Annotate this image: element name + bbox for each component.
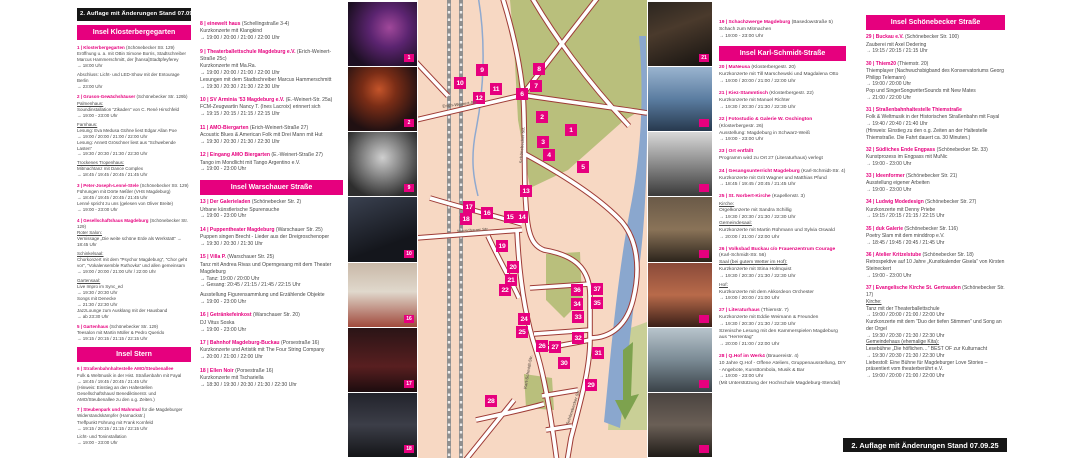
venue-line: → 19:30 / 20:30 / 21:30 / 22:30 Uhr bbox=[200, 84, 343, 91]
photo-right-3 bbox=[648, 132, 712, 196]
venue-line: Kurzkonzerte mit Martin Rühmann und Sylv… bbox=[719, 228, 846, 235]
section-header: Insel Schönebecker Straße bbox=[866, 15, 1005, 30]
map-marker-35: 35 bbox=[591, 297, 603, 309]
venue-title: 28 | Q.Hof im Werk4 (Brauereistr. 4) bbox=[719, 354, 846, 361]
venue-entry-10: 10 | SV Arminia ’53 Magdeburg e.V. (E.-W… bbox=[200, 97, 343, 118]
flyer: 2. Auflage mit Änderungen Stand 07.09.25… bbox=[0, 0, 1079, 458]
venue-line: → 19:00 - 23:00 Uhr bbox=[200, 166, 343, 173]
map-marker-5: 5 bbox=[577, 161, 589, 173]
map-marker-6: 6 bbox=[516, 88, 528, 100]
photo-badge bbox=[699, 315, 709, 323]
venue-address: (Schönebecker Str. 116) bbox=[903, 226, 958, 232]
venue-line: → 19:15 / 20:15 / 21:15 / 22:15 Uhr bbox=[200, 111, 343, 118]
venue-line: → 18:45 / 19:45 / 20:45 / 21:45 Uhr bbox=[719, 182, 846, 189]
photo-right-2 bbox=[648, 67, 712, 131]
photo-badge: 1 bbox=[404, 54, 414, 62]
map-marker-25: 25 bbox=[516, 326, 528, 338]
map-marker-7: 7 bbox=[530, 80, 542, 92]
venue-line: Ausstellung Figurensammlung und Erzählen… bbox=[200, 292, 343, 299]
venue-title: 13 | Der Galerieladen (Schönebecker Str.… bbox=[200, 199, 343, 206]
venue-line: Kurzkonzerte und Artistik mit The Four S… bbox=[200, 347, 343, 354]
venue-line: → 19:00 / 20:00 Uhr bbox=[866, 81, 1005, 88]
venue-title: 26 | Volksbad Buckau c/o Frauenzentrum C… bbox=[719, 247, 846, 260]
photo-right-5 bbox=[648, 263, 712, 327]
program-column-4: Insel Schönebecker Straße29 | Buckau e.V… bbox=[866, 12, 1005, 385]
venue-line: Retrospektive auf 10 Jahre „Kunstkalende… bbox=[866, 259, 1005, 273]
venue-address: (Basedowstraße 5) bbox=[790, 20, 833, 25]
venue-entry-11: 11 | AMO-Biergarten (Erich-Weinert-Straß… bbox=[200, 125, 343, 146]
photo-badge bbox=[699, 119, 709, 127]
venue-line: Eröffnung u. a. mit OBin Simone Borris, … bbox=[77, 51, 191, 63]
venue-line: → 23:00 Uhr bbox=[77, 84, 191, 90]
venue-name: 33 | Ideenformer bbox=[866, 173, 905, 179]
venue-address: (Schönebecker Str. 129) bbox=[108, 324, 158, 329]
venue-entry-36: 36 | Atelier Kritzelstube (Schönebecker … bbox=[866, 252, 1005, 280]
venue-line: Folk & Weltmusik in der Historischen Str… bbox=[866, 114, 1005, 121]
venue-line: → 19:00 - 23:00 Uhr bbox=[77, 207, 191, 213]
venue-address: (E.-Weinert-Straße 27) bbox=[270, 152, 323, 158]
venue-title: 19 | Schachzwerge Magdeburg (Basedowstra… bbox=[719, 20, 846, 27]
map-marker-37: 37 bbox=[591, 283, 603, 295]
venue-entry-3: 3 | Peter-Joseph-Lenné-Stele (Schönebeck… bbox=[77, 183, 191, 213]
photo-left-3: 9 bbox=[348, 132, 417, 196]
venue-line: Kurzkonzerte mit Till Marschewski und Ma… bbox=[719, 72, 846, 79]
venue-name: 32 | Südliches Ende Engpass bbox=[866, 147, 935, 153]
venue-title: 31 | Straßenbahnhaltestelle Thiemstraße bbox=[866, 107, 1005, 114]
venue-line: → 19:15 / 20:15 / 21:15 Uhr bbox=[866, 48, 1005, 55]
venue-line: Lesungen mit dem Stadtschreiber Marcus H… bbox=[200, 77, 343, 84]
venue-entry-14: 14 | Puppentheater Magdeburg (Warschauer… bbox=[200, 227, 343, 248]
venue-entry-1: 1 | Klosterbergegarten (Schönebecker Str… bbox=[77, 45, 191, 90]
venue-entry-21: 21 | Kiez-Stammtisch (Klosterbergestr. 2… bbox=[719, 91, 846, 111]
venue-address: (Schönebecker Str. 27) bbox=[924, 199, 977, 205]
venue-line: → 19:40 / 20:40 / 21:40 Uhr bbox=[866, 121, 1005, 128]
venue-line: Folk & Weltmusik in der Hist. Straßenbah… bbox=[77, 373, 191, 379]
venue-line: → 19:30 / 20:30 / 21:30 / 22:30 Uhr bbox=[719, 105, 846, 112]
venue-line: → 19:00 - 23:00 Uhr bbox=[200, 327, 343, 334]
map-marker-2: 2 bbox=[536, 111, 548, 123]
map-overlay: 1234567891011121314151617181920212224252… bbox=[418, 0, 647, 458]
map-marker-3: 3 bbox=[537, 136, 549, 148]
venue-name: 13 | Der Galerieladen bbox=[200, 199, 250, 205]
venue-title: 36 | Atelier Kritzelstube (Schönebecker … bbox=[866, 252, 1005, 259]
venue-name: 4 | Gesellschaftshaus Magdeburg bbox=[77, 218, 149, 223]
street-label-3: Warschauer Str. bbox=[457, 226, 489, 233]
venue-name: 14 | Puppentheater Magdeburg bbox=[200, 227, 274, 233]
venue-entry-31: 31 | Straßenbahnhaltestelle ThiemstraßeF… bbox=[866, 107, 1005, 141]
venue-entry-20: 20 | MaNeusa (Klosterbergestr. 20)Kurzko… bbox=[719, 65, 846, 85]
venue-line: Acoustic Blues & American Folk mit Drei … bbox=[200, 132, 343, 139]
venue-line: Urbane künstlerische Spurensuche bbox=[200, 207, 343, 214]
venue-line: (Mit Unterstützung der Hochschule Magdeb… bbox=[719, 381, 846, 388]
venue-name: 9 | Theaterballettschule Magdeburg e.V. bbox=[200, 49, 296, 55]
map-marker-26: 26 bbox=[536, 340, 548, 352]
map: 1234567891011121314151617181920212224252… bbox=[418, 0, 647, 458]
venue-line: → 19:00 - 23:00 Uhr bbox=[719, 374, 846, 381]
venue-line: → 19:30 / 20:30 / 21:30 / 22:30 Uhr bbox=[200, 139, 343, 146]
venue-line: Kurzkonzerte mit Denny Priebe bbox=[866, 207, 1005, 214]
venue-title: 24 | Gesangsunterricht Magdeburg (Karl-S… bbox=[719, 169, 846, 176]
venue-entry-35: 35 | duk Galerie (Schönebecker Str. 116)… bbox=[866, 226, 1005, 247]
venue-entry-13: 13 | Der Galerieladen (Schönebecker Str.… bbox=[200, 199, 343, 220]
venue-entry-17: 17 | Bahnhof Magdeburg-Buckau (Porsestra… bbox=[200, 340, 343, 361]
venue-address: (Thiemstr. 7) bbox=[760, 308, 789, 313]
map-marker-28: 28 bbox=[485, 395, 497, 407]
venue-name: 2 | Gruson-Gewächshäuser bbox=[77, 94, 135, 99]
venue-address: (Klosterbergestr. 20) bbox=[750, 65, 796, 70]
venue-line: → 19:00 / 20:00 / 21:00 / 22:00 Uhr bbox=[200, 70, 343, 77]
street-label-1: Erich-Weinert-Str. bbox=[442, 99, 478, 108]
venue-line: FCM-Zeugwartin Nancy T. (Ines Lacroix) e… bbox=[200, 104, 343, 111]
venue-entry-23: 23 | Ort entfälltProgramm wird zu Ort 27… bbox=[719, 149, 846, 163]
venue-name: 25 | St. Norbert-Kirche bbox=[719, 194, 771, 199]
venue-entry-6: 6 | Straßenbahnhaltestelle AMO/Steubenal… bbox=[77, 366, 191, 402]
photo-badge: 17 bbox=[404, 380, 414, 388]
venue-address: (E.-Weinert-Str. 25a) bbox=[284, 97, 332, 103]
photo-badge bbox=[699, 184, 709, 192]
map-marker-29: 29 bbox=[585, 379, 597, 391]
venue-address: (Klosterbergestr. 26) bbox=[719, 124, 763, 129]
photo-left-7: 18 bbox=[348, 393, 417, 457]
venue-address: (Karl-Schmidt-Str. 56) bbox=[719, 253, 766, 258]
map-marker-31: 31 bbox=[592, 347, 604, 359]
venue-address: (Schönebecker Str. 2) bbox=[250, 199, 301, 205]
venue-line: Kurzkonzerte mit Tschariella bbox=[200, 375, 343, 382]
venue-room-label: Gemeindehaus (ehemalige Kita): bbox=[866, 339, 1005, 346]
map-marker-9: 9 bbox=[476, 64, 488, 76]
venue-line: → 19:15 / 20:15 / 21:15 / 22:15 Uhr bbox=[866, 213, 1005, 220]
photo-left-1: 1 bbox=[348, 2, 417, 66]
venue-line: Schach zum Mitmachen bbox=[719, 27, 846, 34]
venue-line: → 19:00 - 23:00 Uhr bbox=[200, 213, 343, 220]
program-column-3: 19 | Schachzwerge Magdeburg (Basedowstra… bbox=[719, 20, 846, 393]
venue-address: (Thiemstr. 20) bbox=[896, 61, 928, 67]
venue-entry-24: 24 | Gesangsunterricht Magdeburg (Karl-S… bbox=[719, 169, 846, 189]
venue-line: Puppen singen Brecht - Lieder aus der Dr… bbox=[200, 234, 343, 241]
venue-name: 1 | Klosterbergegarten bbox=[77, 45, 125, 50]
venue-line: Lesebühne „Die höflichen…” BEST OF zur K… bbox=[866, 346, 1005, 353]
venue-line: Kurzkonzerte mit Ma.Ra. bbox=[200, 63, 343, 70]
venue-title: 33 | Ideenformer (Schönebecker Str. 21) bbox=[866, 173, 1005, 180]
venue-address: (Schönebecker Str. 100) bbox=[904, 34, 959, 40]
venue-line: → 18:45 / 19:45 / 20:45 / 21:45 Uhr bbox=[77, 172, 191, 178]
venue-title: 18 | Ellen Noir (Porsestraße 16) bbox=[200, 368, 343, 375]
venue-line: Soundinstallation “Zikaden” von C. René … bbox=[77, 107, 191, 113]
venue-line: → 19:30 / 20:30 / 21:30 / 22:30 Uhr bbox=[866, 333, 1005, 340]
venue-line: → 21:00 / 22:00 Uhr bbox=[866, 95, 1005, 102]
venue-entry-7: 7 | Steubenpark und Mahnmal für die Magd… bbox=[77, 407, 191, 446]
venue-name: 16 | Getränkefeinkost bbox=[200, 312, 252, 318]
map-marker-18: 18 bbox=[460, 213, 472, 225]
venue-address: (Karl-Schmidt-Str. 4) bbox=[800, 169, 846, 174]
venue-entry-33: 33 | Ideenformer (Schönebecker Str. 21)A… bbox=[866, 173, 1005, 194]
map-marker-32: 32 bbox=[572, 332, 584, 344]
street-label-2: Schönebecker Str. bbox=[518, 127, 526, 164]
venue-address: (Schellingstraße 3-4) bbox=[241, 21, 290, 27]
venue-name: 5 | Gartenhaus bbox=[77, 324, 108, 329]
venue-line: → 20:00 / 21:00 / 22:00 Uhr bbox=[719, 235, 846, 242]
photo-badge bbox=[699, 380, 709, 388]
venue-address: (Schönebecker Str. 33) bbox=[935, 147, 988, 153]
map-marker-1: 1 bbox=[565, 124, 577, 136]
venue-entry-9: 9 | Theaterballettschule Magdeburg e.V. … bbox=[200, 49, 343, 91]
venue-title: 17 | Bahnhof Magdeburg-Buckau (Porsestra… bbox=[200, 340, 343, 347]
venue-line: → 19:00 - 23:00 Uhr bbox=[77, 440, 191, 446]
venue-line: Kunstprozess im Engpass mit MuNic bbox=[866, 154, 1005, 161]
venue-title: 16 | Getränkefeinkost (Warschauer Str. 2… bbox=[200, 312, 343, 319]
venue-title: 9 | Theaterballettschule Magdeburg e.V. … bbox=[200, 49, 343, 63]
venue-title: 20 | MaNeusa (Klosterbergestr. 20) bbox=[719, 65, 846, 72]
map-marker-27: 27 bbox=[549, 341, 561, 353]
venue-name: 34 | Ludwig Modedesign bbox=[866, 199, 924, 205]
venue-line: → 19:00 - 23:00 Uhr bbox=[866, 187, 1005, 194]
photo-badge bbox=[699, 250, 709, 258]
venue-line: → Tanz: 19:00 / 20:00 Uhr bbox=[200, 276, 343, 283]
venue-name: 31 | Straßenbahnhaltestelle Thiemstraße bbox=[866, 107, 962, 113]
venue-name: 37 | Evangelische Kirche St. Gertrauden bbox=[866, 285, 961, 291]
program-column-2: 8 | einewelt haus (Schellingstraße 3-4)K… bbox=[200, 21, 343, 395]
venue-address: (Kapellenstr. 3) bbox=[771, 194, 805, 199]
venue-entry-16: 16 | Getränkefeinkost (Warschauer Str. 2… bbox=[200, 312, 343, 333]
venue-title: 25 | St. Norbert-Kirche (Kapellenstr. 3) bbox=[719, 194, 846, 201]
map-marker-11: 11 bbox=[490, 83, 502, 95]
venue-name: 27 | Literaturhaus bbox=[719, 308, 760, 313]
photo-left-6: 17 bbox=[348, 328, 417, 392]
venue-entry-19: 19 | Schachzwerge Magdeburg (Basedowstra… bbox=[719, 20, 846, 40]
map-marker-14: 14 bbox=[516, 211, 528, 223]
venue-title: 3 | Peter-Joseph-Lenné-Stele (Schönebeck… bbox=[77, 183, 191, 189]
photo-badge: 9 bbox=[404, 184, 414, 192]
photo-left-4: 10 bbox=[348, 197, 417, 261]
venue-line: Programm wird zu Ort 27 (Literaturhaus) … bbox=[719, 156, 846, 163]
venue-line: Szenische Lesung mit den Kammerspielen M… bbox=[719, 329, 846, 342]
venue-line: Kurzkonzerte mit Stina Holmquist bbox=[719, 267, 846, 274]
venue-address: (Porsestraße 16) bbox=[234, 368, 274, 374]
map-marker-24: 24 bbox=[518, 313, 530, 325]
map-marker-30: 30 bbox=[558, 357, 570, 369]
venue-address: (Schönebecker Str. 129b) bbox=[135, 94, 187, 99]
venue-line: (Hinweis: Einstieg zu den o.g. Zeiten an… bbox=[866, 128, 1005, 142]
venue-name: 3 | Peter-Joseph-Lenné-Stele bbox=[77, 183, 139, 188]
venue-line: Pop und SingerSongwriterSounds mit New M… bbox=[866, 88, 1005, 95]
venue-title: 14 | Puppentheater Magdeburg (Warschauer… bbox=[200, 227, 343, 234]
venue-line: → 19:00 - 23:00 Uhr bbox=[719, 137, 846, 144]
venue-name: 18 | Ellen Noir bbox=[200, 368, 234, 374]
venue-line: → 19:00 - 23:00 Uhr bbox=[866, 273, 1005, 280]
section-header: Insel Stern bbox=[77, 347, 191, 362]
venue-address: (Brauereistr. 4) bbox=[765, 354, 799, 359]
venue-name: 24 | Gesangsunterricht Magdeburg bbox=[719, 169, 800, 174]
map-marker-17: 17 bbox=[463, 201, 475, 213]
venue-room-label: Hof: bbox=[719, 283, 846, 290]
venue-address: (Klosterbergestr. 22) bbox=[768, 91, 814, 96]
street-label-4: Karl-Schmidt-Str. bbox=[523, 355, 534, 390]
venue-name: 12 | Eingang AMO Biergarten bbox=[200, 152, 270, 158]
venue-room-label: Kirche: bbox=[866, 299, 1005, 306]
venue-address: (Schönebecker Str. 21) bbox=[905, 173, 958, 179]
map-marker-10: 10 bbox=[454, 77, 466, 89]
venue-name: 6 | Straßenbahnhaltestelle AMO/Steubenal… bbox=[77, 366, 173, 371]
venue-line: → Gesang: 20:45 / 21:15 / 21:45 / 22:15 … bbox=[200, 282, 343, 289]
venue-title: 15 | Villa P. (Warschauer Str. 25) bbox=[200, 254, 343, 261]
photo-right-4 bbox=[648, 197, 712, 261]
venue-line: → 20:00 / 21:00 / 22:00 Uhr bbox=[719, 342, 846, 349]
venue-entry-15: 15 | Villa P. (Warschauer Str. 25)Tanz m… bbox=[200, 254, 343, 305]
venue-line: → 20:00 / 21:00 / 22:00 Uhr bbox=[200, 354, 343, 361]
venue-address: (Warschauer Str. 25) bbox=[226, 254, 274, 260]
venue-name: 30 | Thiem20 bbox=[866, 61, 896, 67]
venue-line: Orgelkonzerte mit Sandra Schillig bbox=[719, 208, 846, 215]
venue-title: 6 | Straßenbahnhaltestelle AMO/Steubenal… bbox=[77, 366, 191, 372]
venue-name: 20 | MaNeusa bbox=[719, 65, 750, 70]
venue-address: (Warschauer Str. 20) bbox=[252, 312, 300, 318]
venue-line: (Hinweis: Einstieg an den Haltestellen G… bbox=[77, 385, 191, 403]
venue-entry-4: 4 | Gesellschaftshaus Magdeburg (Schöneb… bbox=[77, 218, 191, 320]
venue-title: 7 | Steubenpark und Mahnmal für die Magd… bbox=[77, 407, 191, 419]
photo-right-1: 21 bbox=[648, 2, 712, 66]
venue-title: 29 | Buckau e.V. (Schönebecker Str. 100) bbox=[866, 34, 1005, 41]
venue-title: 34 | Ludwig Modedesign (Schönebecker Str… bbox=[866, 199, 1005, 206]
venue-line: Kurzkonzerte mit dem “Duo der tiefen Sti… bbox=[866, 319, 1005, 333]
photo-badge: 10 bbox=[404, 250, 414, 258]
venue-entry-12: 12 | Eingang AMO Biergarten (E.-Weinert-… bbox=[200, 152, 343, 173]
venue-name: 15 | Villa P. bbox=[200, 254, 226, 260]
map-marker-13: 13 bbox=[520, 185, 532, 197]
venue-line: Ausstellung eigener Arbeiten bbox=[866, 180, 1005, 187]
venue-line: → 18:30 / 19:30 / 20:30 / 21:30 / 22:30 … bbox=[200, 382, 343, 389]
map-marker-36: 36 bbox=[571, 284, 583, 296]
venue-line: → 19:15 / 20:15 / 21:15 / 22:15 Uhr bbox=[77, 336, 191, 342]
venue-entry-5: 5 | Gartenhaus (Schönebecker Str. 129)Te… bbox=[77, 324, 191, 342]
photo-strip-right: 21 bbox=[648, 2, 712, 457]
venue-line: Chorkonzert mit dem “Psychor Magdeburg”,… bbox=[77, 257, 191, 269]
venue-title: 10 | SV Arminia ’53 Magdeburg e.V. (E.-W… bbox=[200, 97, 343, 104]
photo-left-5: 16 bbox=[348, 263, 417, 327]
venue-entry-22: 22 | Fotostudio & Galerie W. Oschington … bbox=[719, 117, 846, 144]
venue-line: Abschluss: Licht- und LED-Show mit der E… bbox=[77, 72, 191, 84]
venue-entry-34: 34 | Ludwig Modedesign (Schönebecker Str… bbox=[866, 199, 1005, 220]
section-header: Insel Klosterbergegarten bbox=[77, 25, 191, 40]
venue-line: → 19:30 / 20:30 / 21:30 / 22:30 Uhr bbox=[719, 322, 846, 329]
map-marker-22: 22 bbox=[499, 284, 511, 296]
venue-entry-8: 8 | einewelt haus (Schellingstraße 3-4)K… bbox=[200, 21, 343, 42]
venue-title: 23 | Ort entfällt bbox=[719, 149, 846, 156]
venue-line: Tanz mit Andrea Rivas und Operngesang mi… bbox=[200, 262, 343, 276]
venue-title: 12 | Eingang AMO Biergarten (E.-Weinert-… bbox=[200, 152, 343, 159]
venue-address: (Schönebecker Str. 18) bbox=[921, 252, 974, 258]
map-marker-20: 20 bbox=[507, 261, 519, 273]
venue-name: 8 | einewelt haus bbox=[200, 21, 241, 27]
venue-line: → 19:30 / 20:30 / 21:30 / 22:30 Uhr bbox=[866, 353, 1005, 360]
venue-line: → 19:30 / 20:30 / 21:30 Uhr bbox=[200, 241, 343, 248]
venue-entry-27: 27 | Literaturhaus (Thiemstr. 7)Kurzkonz… bbox=[719, 308, 846, 348]
photo-badge: 2 bbox=[404, 119, 414, 127]
section-header: Insel Warschauer Straße bbox=[200, 180, 343, 195]
map-marker-16: 16 bbox=[481, 207, 493, 219]
venue-name: 11 | AMO-Biergarten bbox=[200, 125, 249, 131]
venue-title: 4 | Gesellschaftshaus Magdeburg (Schöneb… bbox=[77, 218, 191, 230]
venue-entry-2: 2 | Gruson-Gewächshäuser (Schönebecker S… bbox=[77, 94, 191, 178]
venue-entry-28: 28 | Q.Hof im Werk4 (Brauereistr. 4)10 J… bbox=[719, 354, 846, 388]
venue-name: 22 | Fotostudio & Galerie W. Oschington bbox=[719, 117, 812, 122]
photo-badge: 18 bbox=[404, 445, 414, 453]
venue-title: 8 | einewelt haus (Schellingstraße 3-4) bbox=[200, 21, 343, 28]
venue-line: Kurzkonzerte mit Klangkind bbox=[200, 28, 343, 35]
venue-title: 11 | AMO-Biergarten (Erich-Weinert-Straß… bbox=[200, 125, 343, 132]
venue-line: → 19:30 / 20:30 / 21:30 / 22:30 Uhr bbox=[719, 274, 846, 281]
section-header: Insel Karl-Schmidt-Straße bbox=[719, 46, 846, 61]
venue-line: Poetry Slam mit dem minddrop e.V. bbox=[866, 233, 1005, 240]
venue-name: 28 | Q.Hof im Werk4 bbox=[719, 354, 765, 359]
venue-line: → 19:00 / 20:00 / 21:00 / 22:00 Uhr bbox=[866, 373, 1005, 380]
venue-line: → 19:00 / 20:00 / 21:00 Uhr bbox=[719, 296, 846, 303]
venue-line: → 19:00 - 23:00 Uhr bbox=[719, 34, 846, 41]
venue-entry-26: 26 | Volksbad Buckau c/o Frauenzentrum C… bbox=[719, 247, 846, 303]
venue-line: Vernissage „Die weite schöne Erde als We… bbox=[77, 236, 191, 248]
venue-entry-25: 25 | St. Norbert-Kirche (Kapellenstr. 3)… bbox=[719, 194, 846, 241]
venue-entry-29: 29 | Buckau e.V. (Schönebecker Str. 100)… bbox=[866, 34, 1005, 55]
venue-address: (Schönebecker Str. 129) bbox=[139, 183, 189, 188]
venue-title: 22 | Fotostudio & Galerie W. Oschington … bbox=[719, 117, 846, 130]
venue-name: 21 | Kiez-Stammtisch bbox=[719, 91, 768, 96]
venue-line: DJ Vitus Soska bbox=[200, 320, 343, 327]
venue-address: (Erich-Weinert-Straße 27) bbox=[249, 125, 309, 131]
venue-title: 32 | Südliches Ende Engpass (Schönebecke… bbox=[866, 147, 1005, 154]
venue-title: 5 | Gartenhaus (Schönebecker Str. 129) bbox=[77, 324, 191, 330]
venue-name: 36 | Atelier Kritzelstube bbox=[866, 252, 921, 258]
venue-room-label: Gemeindesaal: bbox=[719, 221, 846, 228]
venue-line: Tanz mit der Theaterballettschule bbox=[866, 306, 1005, 313]
venue-entry-32: 32 | Südliches Ende Engpass (Schönebecke… bbox=[866, 147, 1005, 168]
photo-strip-left: 12910161718 bbox=[348, 2, 417, 457]
venue-title: 1 | Klosterbergegarten (Schönebecker Str… bbox=[77, 45, 191, 51]
map-marker-8: 8 bbox=[533, 63, 545, 75]
edition-note-bottom: 2. Auflage mit Änderungen Stand 07.09.25 bbox=[843, 438, 1007, 452]
map-marker-4: 4 bbox=[543, 149, 555, 161]
map-marker-19: 19 bbox=[496, 240, 508, 252]
venue-line: 10 Jahre Q.Hof - Offene Ateliers, Gruppe… bbox=[719, 361, 846, 374]
venue-line: → 19:00 - 23:00 Uhr bbox=[866, 161, 1005, 168]
venue-line: Lesung: Eva Medusa Gühne liest Edgar All… bbox=[77, 128, 191, 134]
venue-address: (Porsestraße 16) bbox=[280, 340, 320, 346]
venue-line: Zauberei mit Axel Dedering bbox=[866, 42, 1005, 49]
venue-name: 26 | Volksbad Buckau c/o Frauenzentrum C… bbox=[719, 247, 835, 252]
photo-badge bbox=[699, 445, 709, 453]
venue-address: (Schönebecker Str. 129) bbox=[125, 45, 175, 50]
venue-name: 19 | Schachzwerge Magdeburg bbox=[719, 20, 790, 25]
venue-name: 35 | duk Galerie bbox=[866, 226, 903, 232]
venue-line: Thiemplayer (Nachwuchsbigband des Konser… bbox=[866, 68, 1005, 82]
photo-badge: 16 bbox=[404, 315, 414, 323]
venue-line: → 19:00 / 20:00 / 21:00 / 22:00 Uhr bbox=[866, 312, 1005, 319]
photo-left-2: 2 bbox=[348, 67, 417, 131]
venue-line: Kurzkonzerte mit Manuel Richter bbox=[719, 98, 846, 105]
venue-address: (Warschauer Str. 25) bbox=[274, 227, 322, 233]
venue-line: → ab 23:30 Uhr bbox=[77, 314, 191, 320]
map-marker-33: 33 bbox=[572, 311, 584, 323]
venue-title: 2 | Gruson-Gewächshäuser (Schönebecker S… bbox=[77, 94, 191, 100]
venue-title: 21 | Kiez-Stammtisch (Klosterbergestr. 2… bbox=[719, 91, 846, 98]
venue-line: → 19:00 - 23:00 Uhr bbox=[200, 299, 343, 306]
street-label-5: Schönebecker Str. bbox=[565, 389, 581, 425]
venue-line: Liebestoll: Eine Bühne für Magdeburger L… bbox=[866, 360, 1005, 374]
venue-line: Tango im Mondlicht mit Tango Argentino e… bbox=[200, 160, 343, 167]
venue-line: → 18:45 / 19:45 / 20:45 / 21:45 Uhr bbox=[866, 240, 1005, 247]
venue-room-label: Saal (bei gutem Wetter im Hof): bbox=[719, 260, 846, 267]
venue-entry-30: 30 | Thiem20 (Thiemstr. 20)Thiemplayer (… bbox=[866, 61, 1005, 102]
edition-note-top: 2. Auflage mit Änderungen Stand 07.09.25 bbox=[77, 8, 191, 21]
venue-entry-18: 18 | Ellen Noir (Porsestraße 16)Kurzkonz… bbox=[200, 368, 343, 389]
